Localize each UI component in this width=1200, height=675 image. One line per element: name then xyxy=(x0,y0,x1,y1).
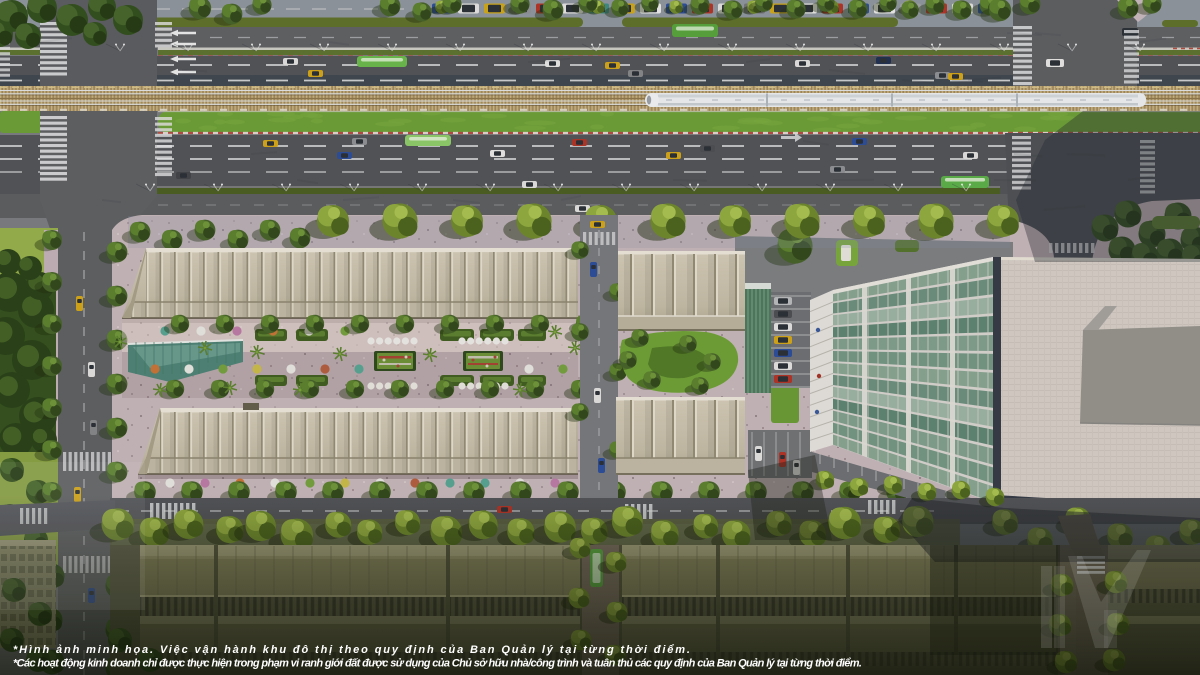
svg-text:*Các hoạt động kinh doanh chỉ: *Các hoạt động kinh doanh chỉ được thực … xyxy=(13,658,862,670)
